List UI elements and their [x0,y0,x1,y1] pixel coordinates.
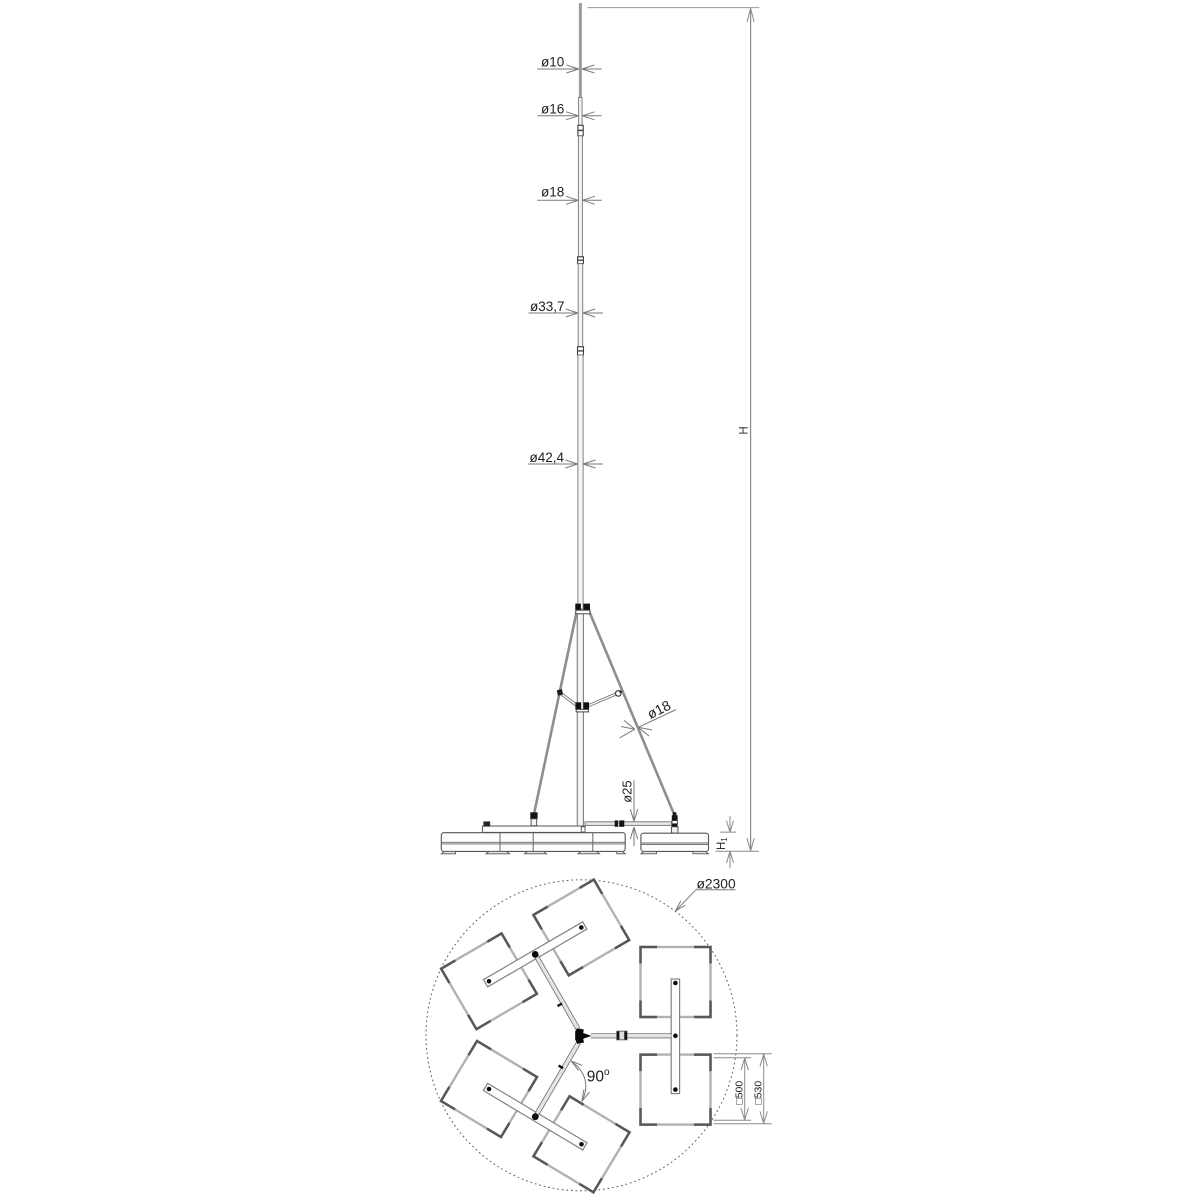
svg-text:H: H [739,426,751,434]
svg-text:ø2300: ø2300 [697,876,736,891]
svg-text:ø10: ø10 [541,55,564,70]
svg-text:□530: □530 [754,1081,765,1105]
svg-text:ø33,7: ø33,7 [530,299,565,314]
svg-text:□500: □500 [735,1081,746,1105]
svg-text:ø42,4: ø42,4 [530,450,565,465]
svg-text:ø16: ø16 [541,102,564,117]
svg-text:ø18: ø18 [541,185,564,200]
svg-text:ø25: ø25 [620,780,635,802]
